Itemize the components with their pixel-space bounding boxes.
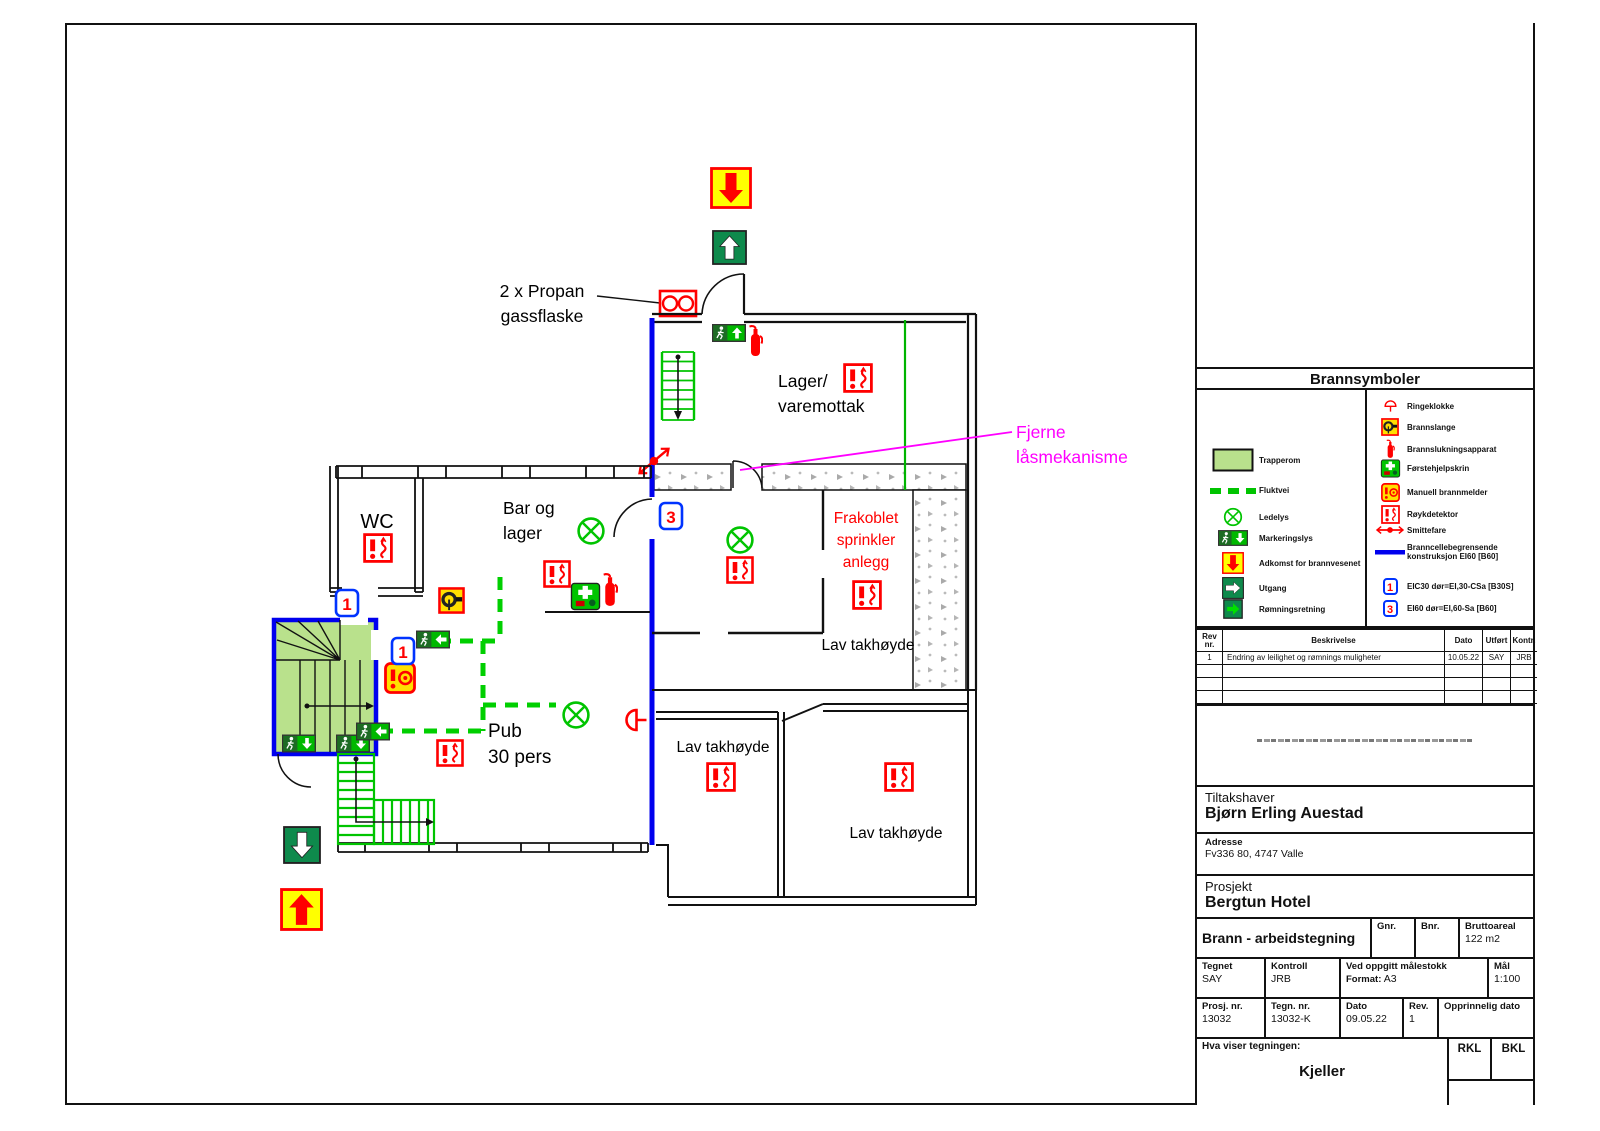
rev-cell-empty (1445, 691, 1483, 704)
legend-item-adkomst: Adkomst for brannvesenet (1207, 552, 1363, 574)
svg-text:1: 1 (342, 595, 351, 614)
prosjekt-section: Prosjekt Bergtun Hotel (1197, 874, 1533, 917)
bkl-cell: BKL (1492, 1039, 1535, 1081)
manuell-brannmelder-icon (1373, 483, 1407, 502)
label-bar-2: lager (503, 523, 542, 543)
rev-cell-empty (1223, 691, 1445, 704)
smoke-detector-icon-middle (728, 558, 753, 583)
label-lav-3: Lav takhøyde (849, 825, 942, 842)
prosjnr-label: Prosj. nr. (1202, 1001, 1259, 1013)
drawing-shows-row: Hva viser tegningen: Kjeller RKL BKL (1197, 1037, 1533, 1105)
rkl-cell: RKL (1449, 1039, 1492, 1081)
opprinnelig-cell: Opprinnelig dato (1437, 999, 1533, 1037)
markeringslys-icon-pub-door (417, 631, 450, 648)
concrete-column (913, 490, 966, 690)
rev-cell-empty (1483, 678, 1511, 691)
rev-cell: SAY (1483, 652, 1511, 665)
brannslange-icon (1373, 418, 1407, 436)
fire-hose-icon (439, 588, 463, 612)
label-bar-1: Bar og (503, 498, 555, 518)
adresse-section: Adresse Fv336 80, 4747 Valle (1197, 832, 1533, 874)
label-lager-1: Lager/ (778, 371, 828, 391)
smoke-detector-icon-pub (438, 741, 463, 766)
bnr-cell: Bnr. (1414, 919, 1458, 957)
label-wc: WC (360, 511, 393, 533)
adkomst-icon (1207, 552, 1259, 574)
rev-cell-tb: Rev. 1 (1402, 999, 1437, 1037)
hva-value: Kjeller (1202, 1063, 1442, 1080)
label-frakoblet-3: anlegg (843, 554, 890, 571)
adresse-label: Adresse (1205, 837, 1525, 848)
drawing-sheet: 2 x Propan gassflaske Lager/ varemottak (0, 0, 1600, 1131)
drawing-type-cell: Brann - arbeidstegning (1197, 919, 1370, 957)
bnr-label: Bnr. (1421, 921, 1453, 933)
door-label-1b: 1 (392, 638, 414, 664)
adresse-value: Fv336 80, 4747 Valle (1205, 848, 1525, 860)
mal-value: 1:100 (1494, 973, 1528, 986)
dato-value: 09.05.22 (1346, 1013, 1397, 1026)
door3-gap (647, 497, 657, 539)
ringeklokke-icon-plan (627, 710, 647, 730)
drawing-type-row: Brann - arbeidstegning Gnr. Bnr. Bruttoa… (1197, 917, 1533, 957)
label-fjerne-2: låsmekanisme (1016, 447, 1128, 467)
tegnnr-cell: Tegn. nr. 13032-K (1264, 999, 1339, 1037)
legend-divider (1365, 390, 1367, 628)
legend-body: Trapperom Fluktvei Ledelys Markeringslys… (1197, 390, 1533, 628)
legend-item-fluktvei: Fluktvei (1207, 486, 1363, 495)
rev-cell-empty (1511, 678, 1537, 691)
legend-title: Brannsymboler (1197, 367, 1533, 390)
tegnnr-value: 13032-K (1271, 1013, 1334, 1026)
bruttoareal-value: 122 m2 (1465, 933, 1528, 946)
tegnnr-label: Tegn. nr. (1271, 1001, 1334, 1013)
malestokk-label: Ved oppgitt målestokk (1346, 961, 1482, 973)
label-propane-2: gassflaske (501, 306, 584, 326)
legend-item-branncelle: Branncellebegrensende konstruksjon EI60 … (1373, 543, 1535, 561)
legend-item-romningsretning: Rømningsretning (1207, 599, 1363, 619)
exit-down-icon-bottom (284, 827, 320, 863)
fire-brigade-access-icon-top (712, 169, 751, 208)
rev-cell: 1 (1197, 652, 1223, 665)
label-lager-2: varemottak (778, 396, 865, 416)
rev-header-utfort: Utført (1483, 630, 1511, 652)
kontroll-value: JRB (1271, 973, 1334, 986)
tiltakshaver-label: Tiltakshaver (1205, 790, 1525, 805)
legend-item-ledelys: Ledelys (1207, 507, 1363, 527)
prosjnr-cell: Prosj. nr. 13032 (1197, 999, 1264, 1037)
lager-stairs (662, 352, 694, 420)
dato-label: Dato (1346, 1001, 1397, 1013)
brannslukningsapparat-icon (1373, 439, 1407, 459)
fluktvei-dash-icon (1207, 487, 1259, 495)
rev-cell-empty (1223, 665, 1445, 678)
rev-header-kontr: Kontr. (1511, 630, 1537, 652)
floor-plan: 2 x Propan gassflaske Lager/ varemottak (274, 169, 1128, 930)
legend-item-utgang: Utgang (1207, 577, 1363, 599)
rev-cell-empty (1223, 678, 1445, 691)
smoke-detector-icon-wc (365, 535, 392, 562)
bruttoareal-label: Bruttoareal (1465, 921, 1528, 933)
romningsretning-icon (1207, 599, 1259, 619)
legend-item-manuell-brannmelder: Manuell brannmelder (1373, 483, 1535, 502)
smittefare-icon (1373, 525, 1407, 535)
rev-cell: 10.05.22 (1445, 652, 1483, 665)
svg-text:1: 1 (398, 643, 407, 662)
door3-arc (614, 499, 652, 537)
label-lav-2: Lav takhøyde (676, 739, 769, 756)
legend-item-smittefare: Smittefare (1373, 525, 1535, 535)
label-fjerne-1: Fjerne (1016, 422, 1066, 442)
exit-up-icon-top (713, 231, 746, 264)
branncelle-line-icon (1373, 548, 1407, 556)
smoke-detector-icon-lowceiling-1 (854, 582, 881, 609)
door-label-3: 3 (660, 503, 682, 529)
lager-inner-door-arc (733, 461, 762, 488)
markeringslys-icon-lager (713, 325, 746, 342)
door-label-1a: 1 (336, 590, 358, 616)
first-aid-icon (571, 583, 599, 609)
rev-value: 1 (1409, 1013, 1432, 1026)
label-lav-1: Lav takhøyde (821, 637, 914, 654)
ledelys-icon (1207, 507, 1259, 527)
forstehjelpskrin-icon (1373, 459, 1407, 478)
bruttoareal-cell: Bruttoareal 122 m2 (1458, 919, 1533, 957)
door-class-3-icon: 3 (1383, 600, 1398, 617)
hva-label: Hva viser tegningen: (1202, 1041, 1442, 1053)
tiltakshaver-section: Tiltakshaver Bjørn Erling Auestad (1197, 785, 1533, 832)
revision-table: Rev nr. Beskrivelse Dato Utført Kontr. 1… (1197, 628, 1533, 706)
prosjekt-value: Bergtun Hotel (1205, 894, 1525, 912)
ledelys-icon-bar (579, 519, 604, 544)
legend-item-door-3: 3 EI60 dør=EI,60-Sa [B60] (1373, 600, 1535, 617)
tegnet-row: Tegnet SAY Kontroll JRB Ved oppgitt måle… (1197, 957, 1533, 997)
kontroll-label: Kontroll (1271, 961, 1334, 973)
legend-item-forstehjelpskrin: Førstehjelpskrin (1373, 459, 1535, 478)
rev-header-nr: Rev nr. (1197, 630, 1223, 652)
smoke-detector-icon-lowceiling-2 (708, 764, 735, 791)
utgang-icon (1207, 577, 1259, 599)
label-pub-2: 30 pers (488, 747, 551, 768)
trapperom-swatch-icon (1207, 448, 1259, 472)
drawing-type: Brann - arbeidstegning (1202, 930, 1355, 946)
svg-text:3: 3 (666, 508, 675, 527)
format-label: Format: (1346, 974, 1381, 985)
smoke-detector-icon-bar (545, 562, 570, 587)
smoke-detector-icon-lager (845, 365, 872, 392)
concrete-wall-band-right (762, 464, 966, 490)
legend-item-roykdetektor: Røykdetektor (1373, 505, 1535, 524)
label-frakoblet-2: sprinkler (837, 532, 896, 549)
door-class-1-icon: 1 (1383, 578, 1398, 595)
ledelys-icon-pub (564, 703, 589, 728)
rev-cell: Endring av leilighet og rømnings mulighe… (1223, 652, 1445, 665)
tegnet-cell: Tegnet SAY (1197, 959, 1264, 997)
markeringslys-icon-pub-route (357, 723, 390, 740)
smoke-detector-icon-lowceiling-3 (886, 764, 913, 791)
pub-stairs (338, 754, 434, 844)
label-frakoblet-1: Frakoblet (834, 510, 899, 527)
extinguisher-icon-lager (750, 326, 763, 356)
dato-cell: Dato 09.05.22 (1339, 999, 1402, 1037)
stairwell (274, 613, 380, 787)
kontroll-cell: Kontroll JRB (1264, 959, 1339, 997)
rev-cell-empty (1197, 665, 1223, 678)
rev-header-beskrivelse: Beskrivelse (1223, 630, 1445, 652)
markeringslys-icon-stair-a (283, 735, 316, 752)
legend-item-brannslange: Brannslange (1373, 418, 1535, 436)
legend-item-door-1: 1 EIC30 dør=EI,30-CSa [B30S] (1373, 578, 1535, 595)
opprinnelig-label: Opprinnelig dato (1444, 1001, 1528, 1013)
legend-item-markeringslys: Markeringslys (1207, 530, 1363, 546)
tiltakshaver-value: Bjørn Erling Auestad (1205, 805, 1525, 823)
propane-bottles-icon (597, 291, 696, 316)
gnr-cell: Gnr. (1370, 919, 1414, 957)
extinguisher-icon-bar (604, 574, 617, 606)
prosjnr-row: Prosj. nr. 13032 Tegn. nr. 13032-K Dato … (1197, 997, 1533, 1037)
hva-cell: Hva viser tegningen: Kjeller (1197, 1039, 1449, 1105)
rev-cell-empty (1445, 678, 1483, 691)
fine-print-line (1257, 739, 1472, 742)
tegnet-label: Tegnet (1202, 961, 1259, 973)
rev-cell-empty (1445, 665, 1483, 678)
mal-cell: Mål 1:100 (1487, 959, 1533, 997)
roykdetektor-icon (1373, 505, 1407, 524)
rev-cell-empty (1483, 691, 1511, 704)
ledelys-icon-middle (728, 528, 753, 553)
rev-cell-empty (1197, 678, 1223, 691)
legend-item-ringeklokke: Ringeklokke (1373, 398, 1535, 414)
rev-cell-empty (1483, 665, 1511, 678)
manual-call-point-icon (386, 664, 415, 693)
gnr-label: Gnr. (1377, 921, 1409, 933)
concrete-wall-band-left (654, 464, 731, 490)
label-propane-1: 2 x Propan (500, 281, 585, 301)
rev-cell-empty (1197, 691, 1223, 704)
fire-brigade-access-icon-bottom (282, 890, 322, 930)
rev-cell: JRB (1511, 652, 1537, 665)
tegnet-value: SAY (1202, 973, 1259, 986)
format-value: A3 (1384, 973, 1397, 985)
rev-cell-empty (1511, 691, 1537, 704)
ringeklokke-icon (1373, 398, 1407, 414)
right-panel: Brannsymboler Trapperom Fluktvei Ledelys… (1195, 23, 1535, 1105)
label-pub-1: Pub (488, 721, 522, 742)
rev-header-dato: Dato (1445, 630, 1483, 652)
legend-item-trapperom: Trapperom (1207, 448, 1363, 472)
rev-label: Rev. (1409, 1001, 1432, 1013)
prosjnr-value: 13032 (1202, 1013, 1259, 1026)
markeringslys-icon (1207, 530, 1259, 546)
mal-label: Mål (1494, 961, 1528, 973)
malestokk-cell: Ved oppgitt målestokk Format: A3 (1339, 959, 1487, 997)
legend-item-brannslukningsapparat: Brannslukningsapparat (1373, 439, 1535, 459)
rev-cell-empty (1511, 665, 1537, 678)
bottom-block-walls (656, 690, 976, 905)
prosjekt-label: Prosjekt (1205, 879, 1525, 894)
